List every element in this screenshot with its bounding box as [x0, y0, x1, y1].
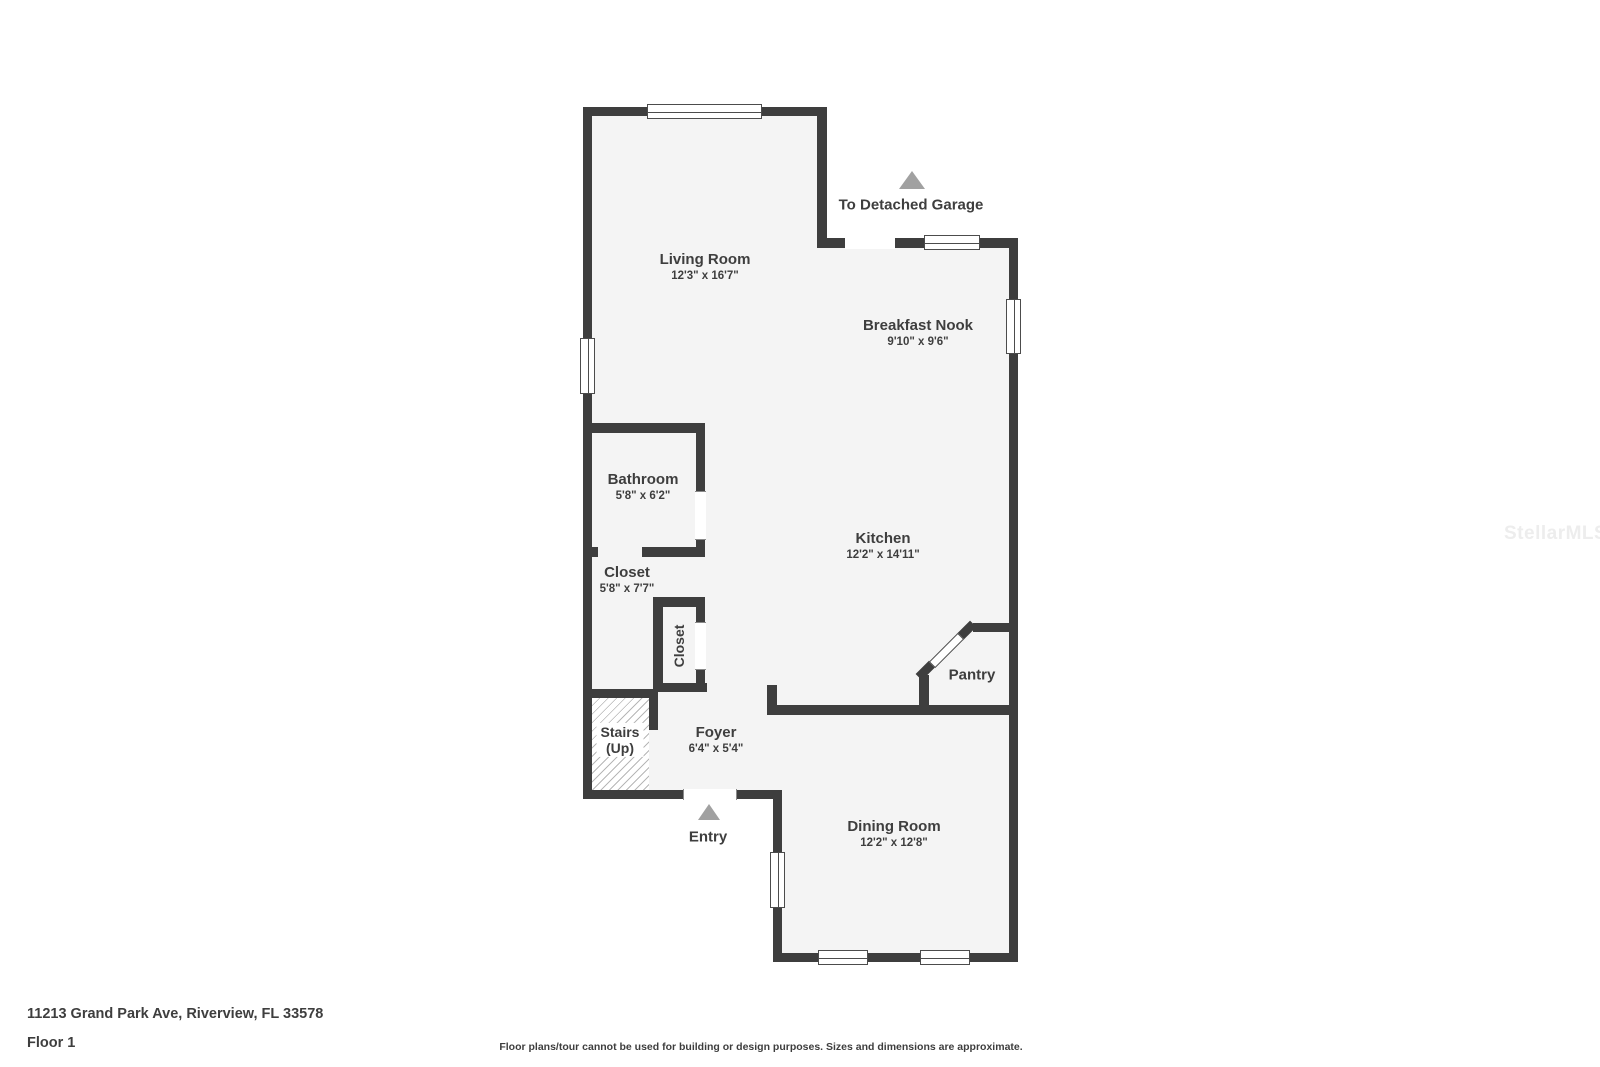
opening-garage [845, 237, 895, 249]
door-bathroom [695, 491, 706, 540]
kitchen-name: Kitchen [846, 530, 919, 547]
closet-name: Closet [600, 564, 655, 581]
stairs-line1: Stairs [601, 724, 640, 740]
dining-room-name: Dining Room [847, 818, 940, 835]
window-dining-bottom-1 [818, 950, 868, 965]
wall-pantry-vertical [919, 675, 929, 715]
foyer-name: Foyer [689, 724, 744, 741]
label-closet: Closet 5'8" x 7'7" [600, 564, 655, 596]
floorplan-page: Living Room 12'3" x 16'7" Breakfast Nook… [0, 0, 1600, 1067]
garage-direction-icon [899, 171, 925, 189]
wall-stairs-top [583, 689, 658, 698]
wall-bathroom-top [583, 423, 705, 433]
kitchen-dims: 12'2" x 14'11" [846, 549, 919, 562]
wall-garage-b [895, 238, 925, 248]
dining-room-dims: 12'2" x 12'8" [847, 837, 940, 850]
bathroom-name: Bathroom [608, 471, 679, 488]
wall-dining-left-a [773, 790, 782, 852]
garage-text: To Detached Garage [839, 196, 984, 213]
disclaimer-text: Floor plans/tour cannot be used for buil… [499, 1041, 1022, 1053]
wall-stairs-right [649, 689, 658, 730]
floor-number: Floor 1 [27, 1035, 75, 1051]
wall-living-right [817, 107, 827, 248]
wall-bathroom-right-a [696, 423, 705, 491]
breakfast-nook-dims: 9'10" x 9'6" [863, 336, 973, 349]
label-pantry: Pantry [949, 666, 996, 683]
label-inner-closet: Closet [671, 625, 687, 668]
wall-entry-left [583, 790, 683, 799]
label-bathroom: Bathroom 5'8" x 6'2" [608, 471, 679, 503]
door-innercloset [695, 622, 706, 670]
wall-dining-bottom-c [970, 953, 1018, 962]
breakfast-nook-name: Breakfast Nook [863, 317, 973, 334]
bathroom-dims: 5'8" x 6'2" [608, 490, 679, 503]
stairs-line2: (Up) [601, 740, 640, 756]
entry-text: Entry [689, 828, 727, 845]
closet-dims: 5'8" x 7'7" [600, 583, 655, 596]
foyer-dims: 6'4" x 5'4" [689, 743, 744, 756]
label-living-room: Living Room 12'3" x 16'7" [660, 251, 751, 283]
label-foyer: Foyer 6'4" x 5'4" [689, 724, 744, 756]
wall-foyer-stub [767, 685, 777, 715]
label-to-detached-garage: To Detached Garage [839, 196, 984, 213]
stellar-mls-watermark: StellarMLS [1504, 523, 1600, 545]
wall-garage-a [817, 238, 845, 248]
label-entry: Entry [689, 828, 727, 845]
wall-innercloset-right-a [696, 597, 705, 622]
window-dining-bottom-2 [920, 950, 970, 965]
wall-kitchen-dining-div [767, 705, 1010, 715]
window-living-left [580, 338, 595, 394]
living-room-dims: 12'3" x 16'7" [660, 270, 751, 283]
window-nook-right [1006, 299, 1021, 354]
wall-innercloset-left [653, 597, 663, 692]
window-living-top [647, 104, 762, 119]
entry-direction-icon [698, 804, 720, 820]
wall-bath-closet-div-a [583, 547, 598, 557]
wall-dining-bottom-b [868, 953, 920, 962]
label-kitchen: Kitchen 12'2" x 14'11" [846, 530, 919, 562]
wall-pantry-top [973, 623, 1010, 632]
window-garage-wall [924, 235, 980, 250]
living-room-name: Living Room [660, 251, 751, 268]
door-entry [683, 789, 737, 800]
label-breakfast-nook: Breakfast Nook 9'10" x 9'6" [863, 317, 973, 349]
property-address: 11213 Grand Park Ave, Riverview, FL 3357… [27, 1006, 323, 1022]
pantry-name: Pantry [949, 666, 996, 683]
window-dining-left [770, 852, 785, 908]
label-stairs: Stairs (Up) [597, 723, 644, 757]
label-dining-room: Dining Room 12'2" x 12'8" [847, 818, 940, 850]
wall-innercloset-right-b [696, 670, 705, 692]
wall-dining-bottom-a [773, 953, 818, 962]
wall-bath-closet-div-b [642, 547, 705, 557]
inner-closet-name: Closet [671, 625, 687, 668]
